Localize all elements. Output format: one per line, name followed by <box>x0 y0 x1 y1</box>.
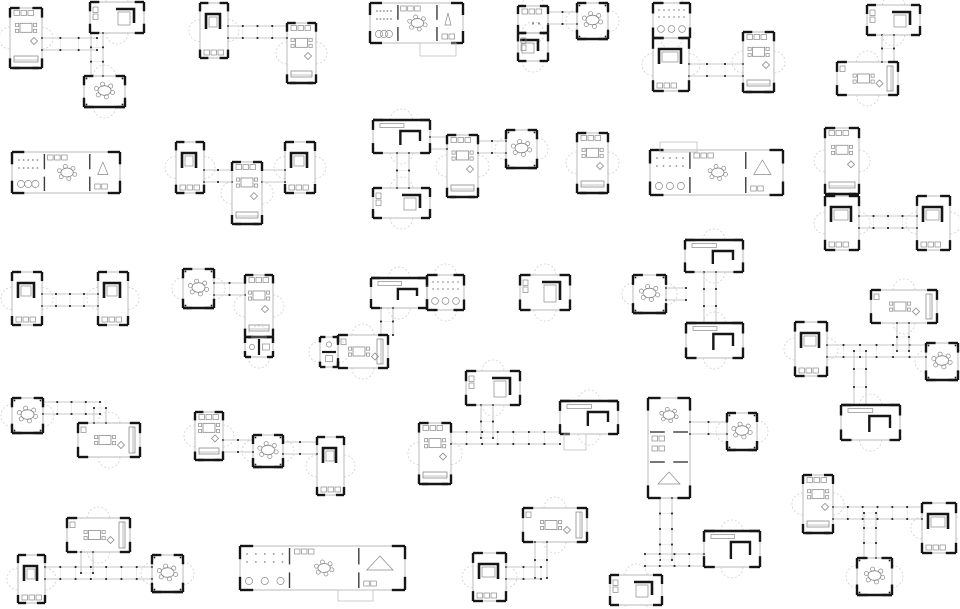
corridors <box>547 11 578 25</box>
module-living <box>814 128 870 194</box>
module-dining <box>846 558 903 595</box>
plan-cluster-c28 <box>792 475 960 595</box>
module-lroom <box>686 312 743 369</box>
module-compound <box>240 546 405 590</box>
module-living <box>234 275 284 337</box>
module-living <box>221 162 273 224</box>
module-living <box>523 497 587 553</box>
module-living <box>78 412 140 468</box>
plan-cluster-c3 <box>370 3 463 56</box>
plan-cluster-c18 <box>784 279 960 451</box>
module-compound <box>648 398 690 498</box>
corridors <box>644 421 728 567</box>
corridors <box>396 136 507 189</box>
module-lroom <box>841 394 900 451</box>
module-living <box>338 324 388 379</box>
module-living <box>732 32 785 92</box>
module-bed <box>814 196 870 250</box>
module-dining <box>1 398 54 433</box>
plan-cluster-c17 <box>622 229 743 369</box>
module-lroom <box>560 390 618 445</box>
module-living <box>436 135 489 197</box>
corridors <box>858 215 918 229</box>
plan-cluster-c11 <box>650 142 783 195</box>
plan-cluster-c26 <box>462 497 587 601</box>
module-dining <box>172 269 225 308</box>
plan-cluster-c15 <box>309 264 464 379</box>
corridors <box>213 282 246 296</box>
module-bed <box>518 22 548 72</box>
module-bed <box>306 437 355 495</box>
plan-cluster-c19 <box>1 398 140 468</box>
module-dining <box>915 343 960 380</box>
plan-cluster-c5 <box>642 0 785 92</box>
module-porch <box>338 590 373 601</box>
module-bed <box>784 322 838 376</box>
corridors <box>826 322 927 406</box>
plan-cluster-c16 <box>520 264 570 321</box>
module-living <box>871 279 937 334</box>
module-porch <box>564 434 586 450</box>
corridors <box>41 32 104 77</box>
module-lroom <box>685 229 743 283</box>
plan-cluster-c14 <box>172 269 284 368</box>
module-bed <box>189 3 239 58</box>
module-bed <box>520 264 570 321</box>
corridors <box>450 404 561 445</box>
corridors <box>380 307 394 336</box>
plan-cluster-c2 <box>189 3 327 83</box>
module-living <box>837 51 898 106</box>
module-dining <box>716 413 768 450</box>
module-compound <box>12 152 120 193</box>
corridors <box>688 63 744 77</box>
module-bed <box>87 272 139 325</box>
plan-cluster-c4 <box>518 0 619 72</box>
module-living <box>67 507 130 563</box>
corridors <box>832 506 923 559</box>
module-bath <box>309 337 349 367</box>
module-compound <box>370 3 463 43</box>
module-bed <box>1 272 53 325</box>
module-bed <box>373 177 430 229</box>
plan-cluster-c13 <box>1 272 139 325</box>
plan-cluster-c25 <box>240 546 405 601</box>
plan-cluster-c1 <box>0 0 144 118</box>
module-lroom <box>371 267 427 319</box>
plan-cluster-c10 <box>566 133 619 193</box>
module-bed <box>90 0 144 44</box>
corridors <box>42 401 107 424</box>
module-porch <box>420 43 456 56</box>
module-dining <box>495 130 548 168</box>
module-lroom <box>704 520 760 578</box>
module-dining <box>566 3 619 39</box>
corridors <box>227 25 288 39</box>
corridors <box>203 169 286 183</box>
module-bath <box>245 326 273 368</box>
module-bed <box>462 553 517 601</box>
floorplan-diagram <box>0 0 960 609</box>
plan-cluster-c20 <box>184 412 355 495</box>
module-dorm <box>653 0 690 49</box>
module-living <box>566 133 619 193</box>
module-bed <box>165 142 215 193</box>
corridors <box>505 541 548 580</box>
module-porch <box>660 142 697 152</box>
module-living <box>276 23 327 83</box>
corridors <box>665 271 717 324</box>
plan-cluster-c22 <box>610 398 768 609</box>
corridors <box>41 293 99 307</box>
plan-cluster-c21 <box>408 360 618 484</box>
plan-cluster-c9 <box>373 109 548 229</box>
plan-cluster-c24 <box>7 507 194 603</box>
module-living <box>792 475 844 533</box>
module-lroom <box>373 109 430 164</box>
floorplan-canvas <box>0 0 960 609</box>
module-bed <box>867 0 920 46</box>
corridors <box>881 34 895 63</box>
module-bed <box>642 38 700 91</box>
module-dining <box>84 65 125 118</box>
plan-cluster-c12 <box>814 128 960 250</box>
module-living <box>184 412 234 460</box>
module-dorm <box>427 264 464 321</box>
module-bed <box>911 503 960 553</box>
module-bed <box>906 196 960 250</box>
corridors <box>44 551 153 580</box>
module-compound <box>650 150 783 195</box>
module-bed <box>274 142 326 193</box>
plan-cluster-c8 <box>165 142 326 224</box>
plan-cluster-c6 <box>837 0 920 106</box>
module-dining <box>622 275 677 313</box>
module-bed <box>610 564 662 609</box>
plan-cluster-c7 <box>12 152 120 193</box>
module-dining <box>141 555 194 592</box>
